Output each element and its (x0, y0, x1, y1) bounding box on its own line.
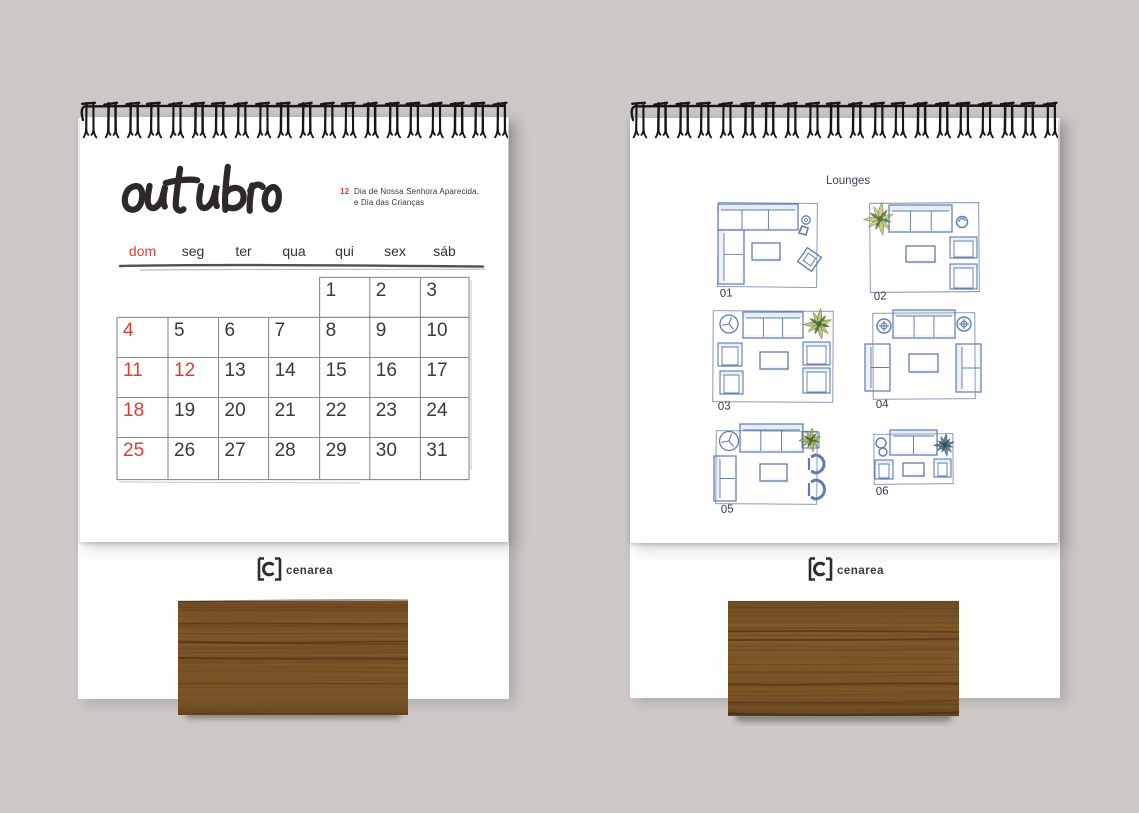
svg-text:05: 05 (721, 503, 734, 516)
svg-text:01: 01 (720, 287, 733, 300)
svg-text:Lounges: Lounges (826, 175, 870, 187)
svg-text:02: 02 (874, 290, 887, 303)
svg-text:03: 03 (718, 400, 731, 413)
svg-text:06: 06 (876, 485, 889, 498)
svg-text:04: 04 (876, 398, 890, 411)
